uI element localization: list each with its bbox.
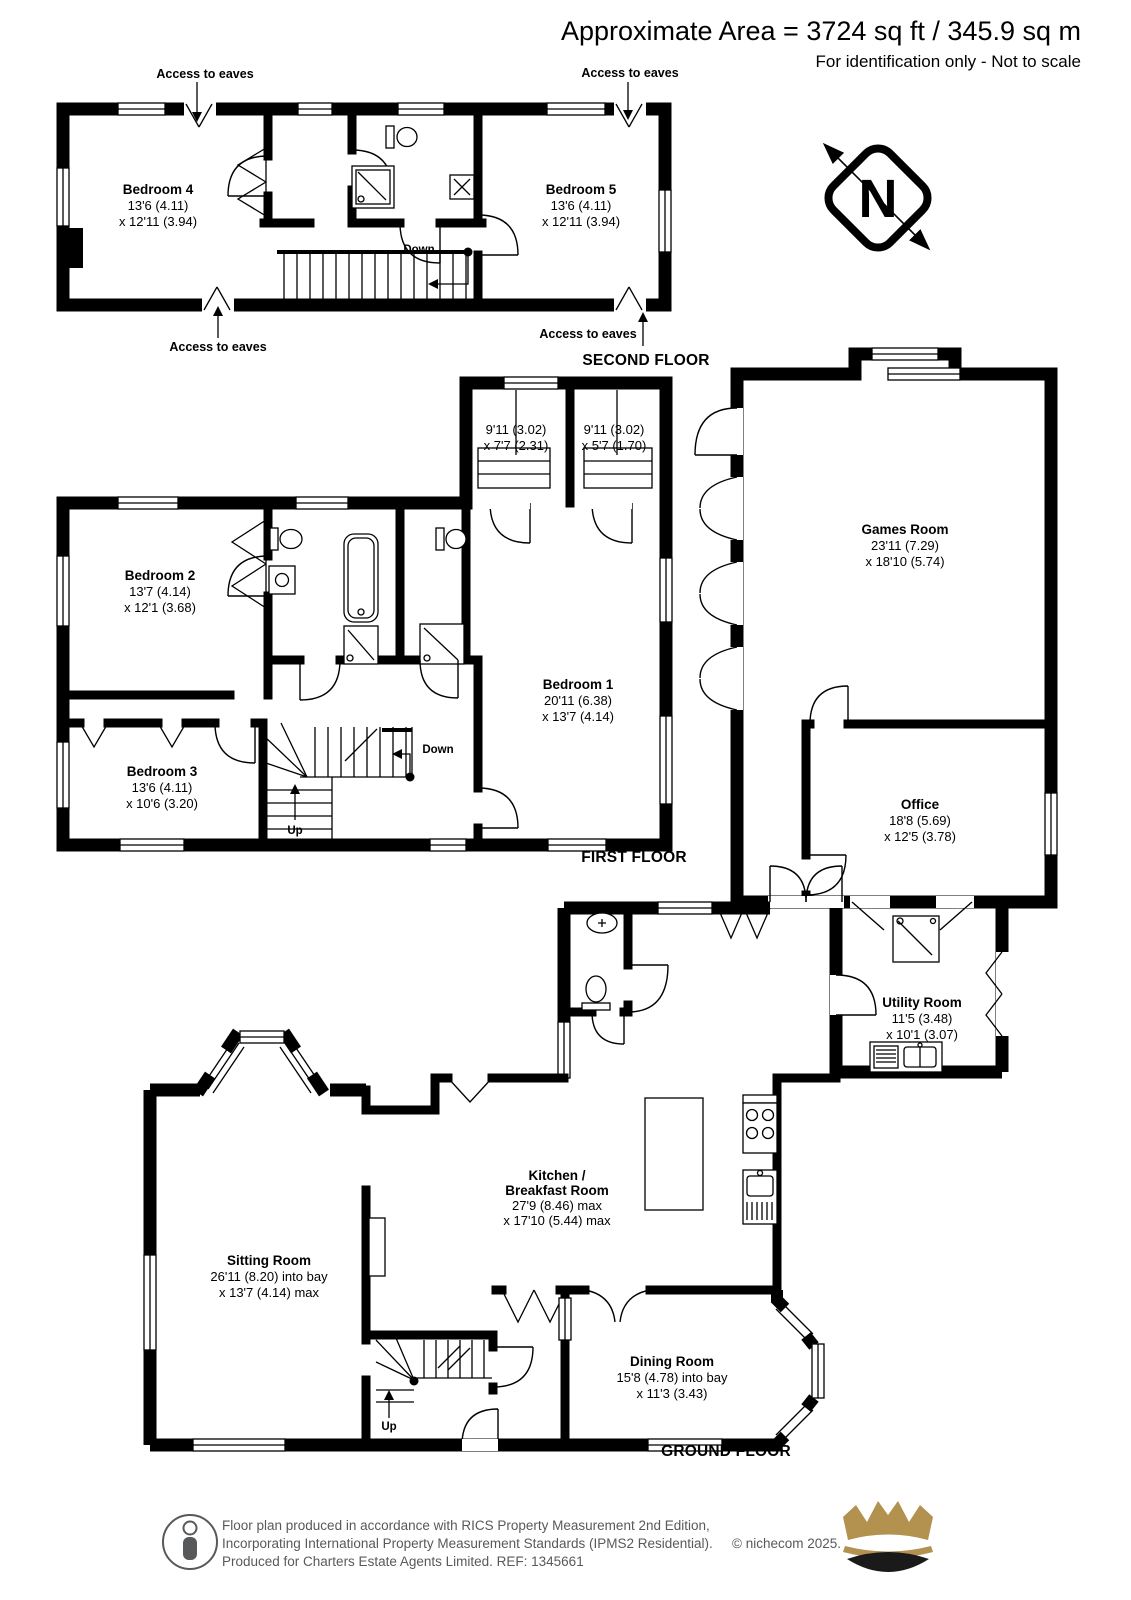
room-label-bedroom-2: Bedroom 2 13'7 (4.14) x 12'1 (3.68) xyxy=(124,568,196,616)
north-compass-icon: N xyxy=(817,137,936,256)
up-arrow-icon xyxy=(384,1390,394,1400)
access-to-eaves-label: Access to eaves xyxy=(156,67,253,81)
door-arc-icon xyxy=(806,686,848,895)
footer-line-2: Incorporating International Property Mea… xyxy=(222,1536,713,1551)
room-label-bedroom-3: Bedroom 3 13'6 (4.11) x 10'6 (3.20) xyxy=(126,764,198,812)
ground-floor-title: GROUND FLOOR xyxy=(661,1443,791,1461)
second-floor-title: SECOND FLOOR xyxy=(582,352,709,370)
basin-icon xyxy=(450,175,474,199)
shower-icon xyxy=(352,166,394,208)
room-label-sitting-room: Sitting Room 26'11 (8.20) into bay x 13'… xyxy=(210,1253,327,1301)
footer-copyright: © nichecom 2025. xyxy=(732,1536,841,1551)
room-label-utility: Utility Room 11'5 (3.48) x 10'1 (3.07) xyxy=(882,995,962,1043)
wardrobe-icon xyxy=(232,520,266,608)
room-label-office: Office 18'8 (5.69) x 12'5 (3.78) xyxy=(884,797,956,845)
staircase-second-floor xyxy=(277,248,473,304)
double-door-icon xyxy=(585,1290,650,1322)
access-to-eaves-label: Access to eaves xyxy=(581,66,678,80)
stairs-up-label: Up xyxy=(287,825,302,837)
stairs-up-label: Up xyxy=(381,1421,396,1433)
stairs-down-label: Down xyxy=(403,244,434,256)
room-label-kitchen: Kitchen / Breakfast Room 27'9 (8.46) max… xyxy=(503,1168,610,1228)
room-label-bedroom-5: Bedroom 5 13'6 (4.11) x 12'11 (3.94) xyxy=(542,182,620,230)
floorplan-page: N xyxy=(0,0,1131,1600)
shower-icon xyxy=(893,916,939,962)
chimney-breast xyxy=(63,228,83,268)
room-label-bedroom-1: Bedroom 1 20'11 (6.38) x 13'7 (4.14) xyxy=(542,677,614,725)
room-label-games-room: Games Room 23'11 (7.29) x 18'10 (5.74) xyxy=(861,522,948,570)
basin-icon xyxy=(269,566,295,594)
room-label-dining-room: Dining Room 15'8 (4.78) into bay x 11'3 … xyxy=(617,1354,728,1402)
chimney-breast xyxy=(369,1218,385,1276)
sink-unit-icon xyxy=(870,1042,942,1072)
door-arc-icon xyxy=(215,503,632,828)
disclaimer-text: For identification only - Not to scale xyxy=(815,52,1081,72)
bay-window-icon xyxy=(198,1031,324,1093)
crown-logo-icon xyxy=(843,1501,933,1572)
bay-window-icon xyxy=(775,1290,824,1446)
stairs-down-label: Down xyxy=(422,744,453,756)
staircase-first-floor xyxy=(263,723,415,845)
room-label-dressing-1: 9'11 (3.02) x 7'7 (2.31) xyxy=(484,422,549,454)
person-scale-icon xyxy=(163,1515,217,1569)
folding-door-icon xyxy=(448,1078,492,1102)
access-to-eaves-label: Access to eaves xyxy=(539,327,636,341)
north-letter: N xyxy=(859,169,898,229)
sink-unit-icon xyxy=(743,1170,777,1224)
approximate-area-text: Approximate Area = 3724 sq ft / 345.9 sq… xyxy=(561,16,1081,47)
toilet-icon xyxy=(582,976,610,1010)
access-to-eaves-label: Access to eaves xyxy=(169,340,266,354)
up-arrow-icon xyxy=(290,784,300,794)
footer-line-3: Produced for Charters Estate Agents Limi… xyxy=(222,1554,584,1569)
kitchen-island xyxy=(645,1098,703,1210)
bath-icon xyxy=(344,534,378,622)
toilet-icon xyxy=(386,126,417,148)
folding-door-icon xyxy=(502,1290,566,1322)
first-floor-title: FIRST FLOOR xyxy=(581,849,687,867)
footer-line-1: Floor plan produced in accordance with R… xyxy=(222,1518,710,1533)
games-room-wing xyxy=(695,348,1057,908)
room-label-dressing-2: 9'11 (3.02) x 5'7 (1.70) xyxy=(582,422,647,454)
hob-icon xyxy=(743,1095,777,1153)
room-label-bedroom-4: Bedroom 4 13'6 (4.11) x 12'11 (3.94) xyxy=(119,182,197,230)
down-arrow-icon xyxy=(428,279,438,289)
basin-icon xyxy=(587,913,617,933)
staircase-ground-floor xyxy=(376,1338,492,1418)
